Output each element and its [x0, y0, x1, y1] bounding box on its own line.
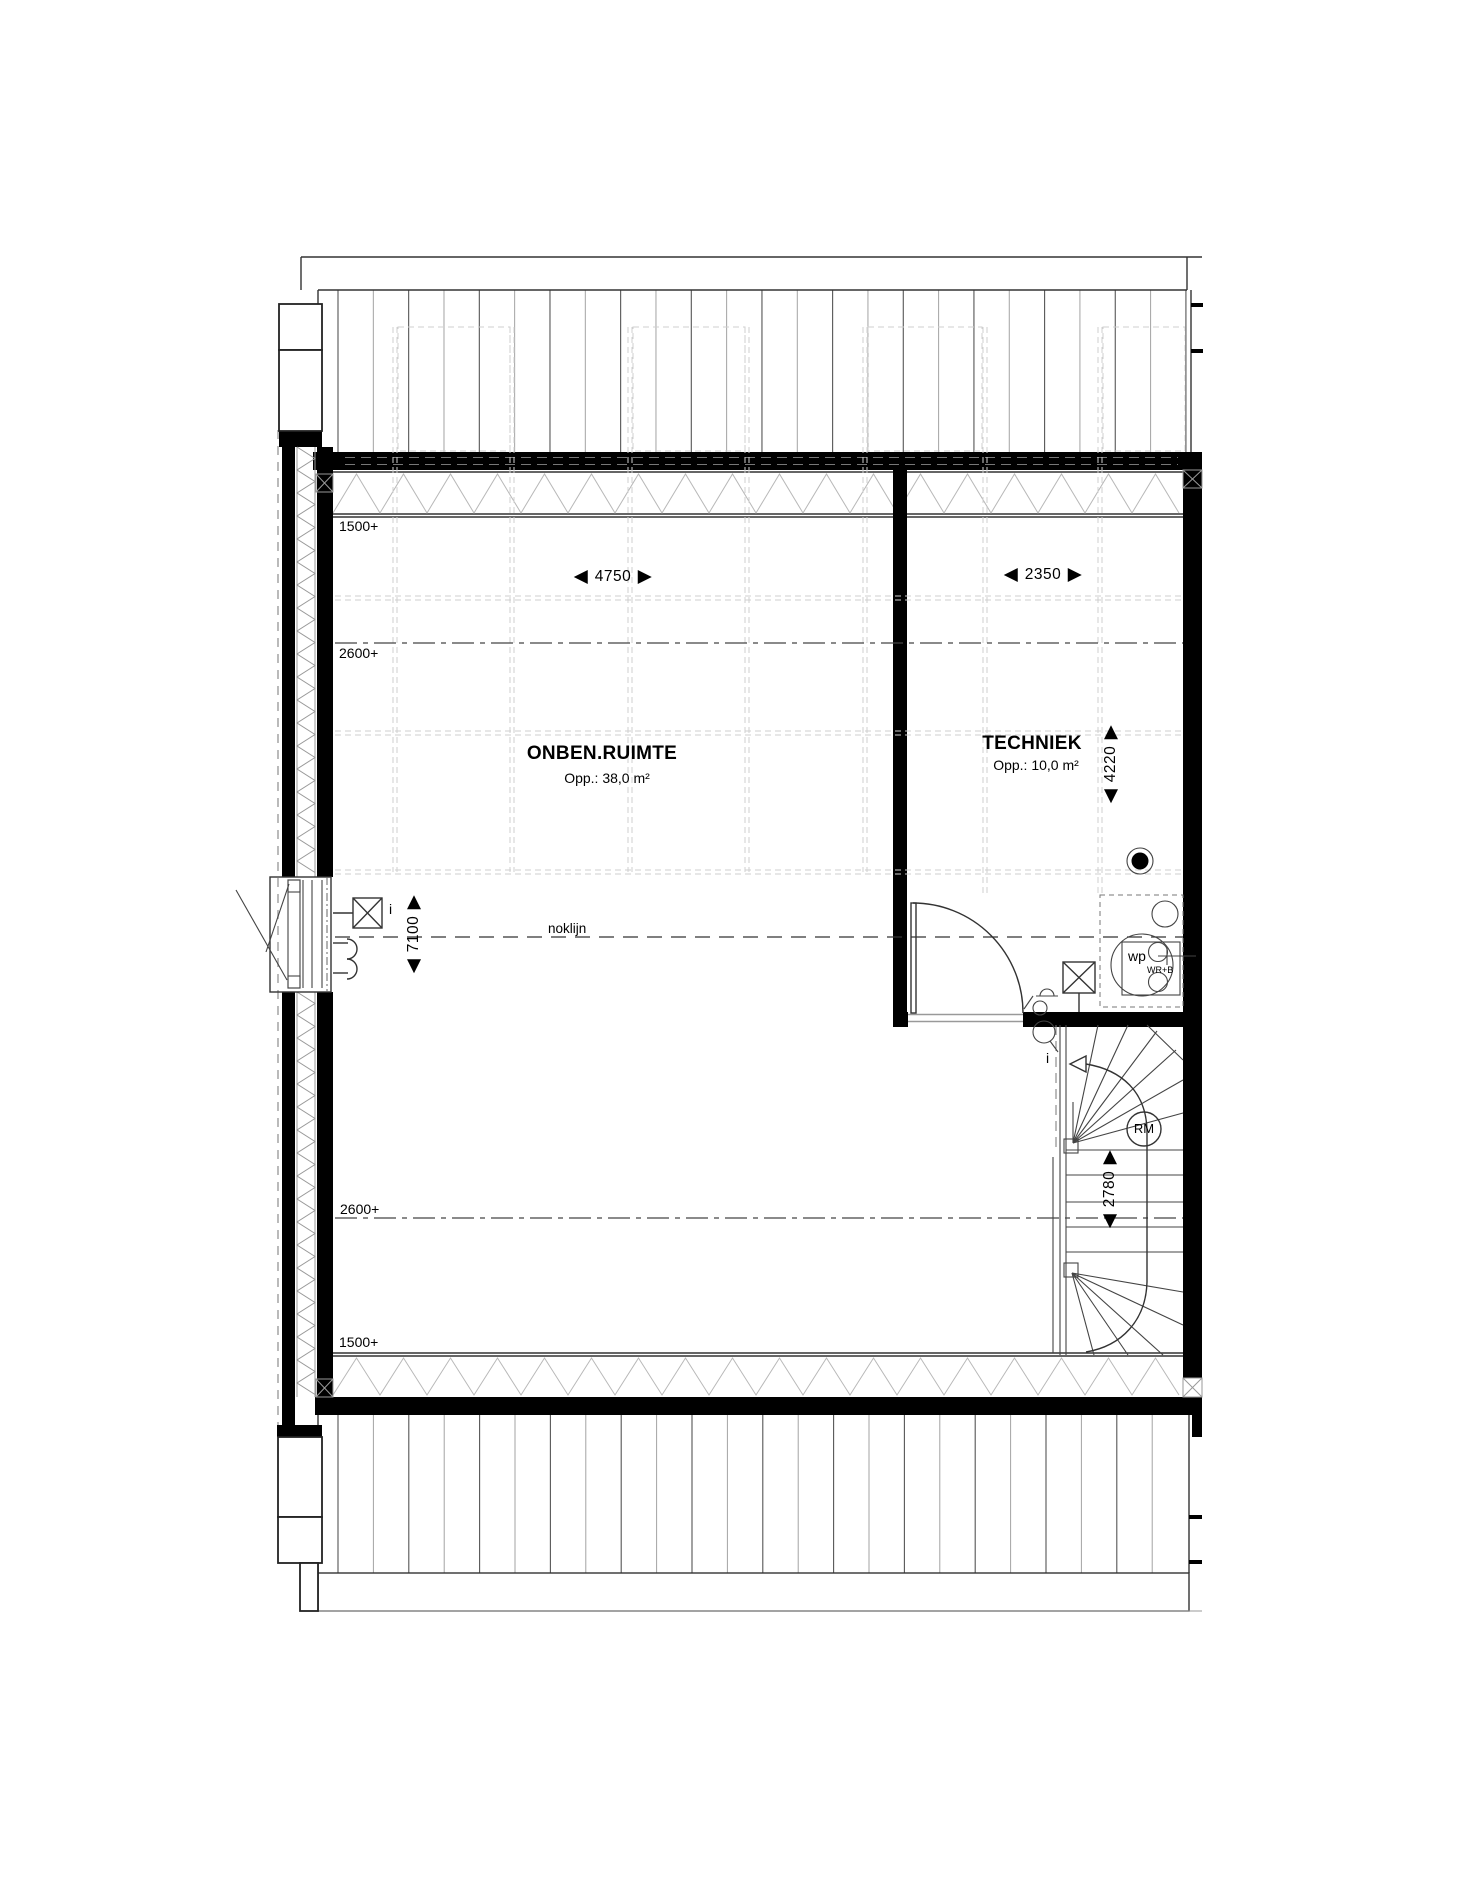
door-info-label: i	[1046, 1050, 1049, 1066]
dim-arrow-right-icon	[1068, 568, 1082, 582]
level-2600-bottom: 2600+	[340, 1201, 379, 1217]
level-2600-top: 2600+	[339, 645, 378, 661]
dim-main-height: 7100	[405, 895, 423, 973]
dim-arrow-down-icon	[1103, 1214, 1117, 1228]
dim-value: 2780	[1101, 1171, 1119, 1207]
paper-background	[0, 0, 1476, 1890]
dim-arrow-left-icon	[1004, 568, 1018, 582]
level-1500-bottom: 1500+	[339, 1334, 378, 1350]
smoke-detector-label: RM	[1126, 1121, 1162, 1136]
dim-value: 2350	[1025, 566, 1061, 584]
level-1500-top: 1500+	[339, 518, 378, 534]
dim-value: 4220	[1102, 746, 1120, 782]
ridge-line-label: noklijn	[545, 921, 589, 936]
dim-arrow-up-icon	[1103, 1150, 1117, 1164]
dim-techniek-height: 4220	[1102, 725, 1120, 803]
room-name-techniek: TECHNIEK	[952, 733, 1112, 755]
dim-arrow-down-icon	[407, 959, 421, 973]
dim-arrow-up-icon	[407, 895, 421, 909]
dim-value: 7100	[405, 916, 423, 952]
floorplan-drawing	[0, 0, 1476, 1890]
heat-pump-sub-label: WR+B	[1147, 965, 1173, 975]
room-area-techniek: Opp.: 10,0 m²	[956, 757, 1116, 773]
heat-pump-label: wp	[1128, 948, 1146, 964]
window-info-label: i	[389, 901, 392, 917]
dim-stair-height: 2780	[1101, 1150, 1119, 1228]
floorplan-canvas: ONBEN.RUIMTE Opp.: 38,0 m² TECHNIEK Opp.…	[0, 0, 1476, 1890]
dim-techniek-width: 2350	[1004, 566, 1082, 584]
dim-main-width: 4750	[574, 568, 652, 586]
dim-arrow-left-icon	[574, 570, 588, 584]
dim-value: 4750	[595, 568, 631, 586]
room-area-onbenruimte: Opp.: 38,0 m²	[527, 770, 687, 786]
dim-arrow-right-icon	[638, 570, 652, 584]
dim-arrow-down-icon	[1104, 789, 1118, 803]
dim-arrow-up-icon	[1104, 725, 1118, 739]
room-name-onbenruimte: ONBEN.RUIMTE	[522, 743, 682, 765]
